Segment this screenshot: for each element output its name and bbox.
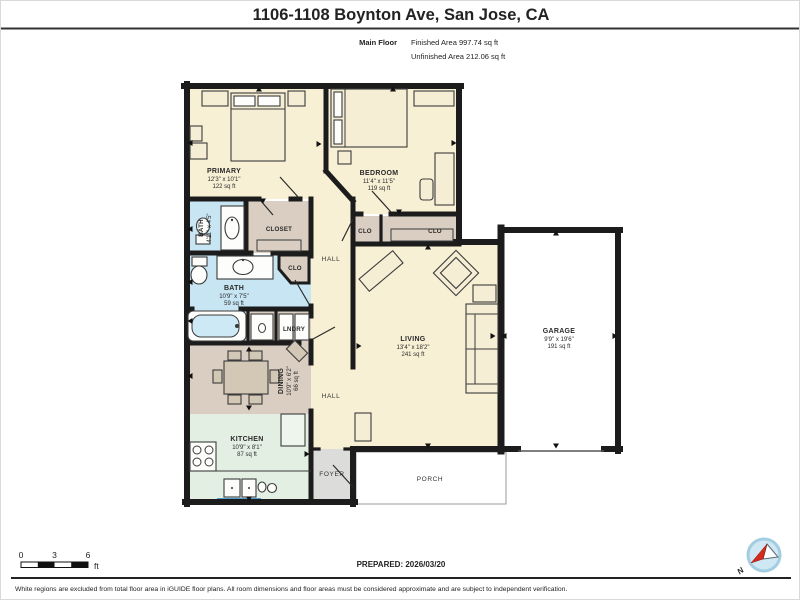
label-garage: GARAGE bbox=[543, 328, 576, 335]
area-kitchen: 87 sq ft bbox=[237, 452, 257, 458]
area-dining: 66 sq ft bbox=[294, 371, 300, 391]
compass-north-label: N bbox=[735, 566, 745, 577]
header: 1106-1108 Boynton Ave, San Jose, CA Main… bbox=[1, 6, 800, 61]
label-clo-hall: CLO bbox=[288, 265, 302, 272]
footer: PREPARED: 2026/03/20 N White regions are… bbox=[11, 539, 791, 593]
living-side-table-icon bbox=[473, 285, 496, 302]
floor-plan-canvas: 1106-1108 Boynton Ave, San Jose, CA Main… bbox=[1, 1, 800, 600]
page-title: 1106-1108 Boynton Ave, San Jose, CA bbox=[253, 6, 550, 24]
bathtub-icon bbox=[188, 311, 246, 341]
dims-dining: 10'9" x 6'2" bbox=[287, 366, 293, 396]
dims-bedroom: 11'4" x 11'5" bbox=[363, 179, 395, 185]
area-living: 241 sq ft bbox=[401, 352, 424, 358]
area-garage: 191 sq ft bbox=[547, 344, 570, 350]
floor-label: Main Floor bbox=[359, 38, 397, 47]
dims-kitchen: 10'9" x 8'1" bbox=[232, 445, 262, 451]
label-foyer: FOYER bbox=[319, 471, 344, 478]
dims-bath-main: 10'9" x 7'5" bbox=[219, 294, 249, 300]
scale-unit: ft bbox=[94, 561, 99, 571]
label-hall-lower: HALL bbox=[322, 393, 341, 400]
label-closet: CLOSET bbox=[266, 226, 292, 233]
floor-plan-page: 1106-1108 Boynton Ave, San Jose, CA Main… bbox=[0, 0, 800, 600]
label-hall-upper: HALL bbox=[322, 256, 341, 263]
prepared-date: PREPARED: 2026/03/20 bbox=[357, 560, 446, 569]
label-dining: DINING bbox=[278, 368, 285, 395]
label-kitchen: KITCHEN bbox=[230, 436, 263, 443]
kitchen-fridge-icon bbox=[281, 414, 305, 446]
unfinished-area: Unfinished Area 212.06 sq ft bbox=[411, 52, 506, 61]
compass-icon: N bbox=[735, 539, 780, 576]
label-living: LIVING bbox=[400, 336, 425, 343]
dims-garage: 9'9" x 19'6" bbox=[544, 337, 574, 343]
label-lndry: LNDRY bbox=[283, 326, 306, 333]
label-bath-main: BATH bbox=[224, 285, 244, 292]
label-primary: PRIMARY bbox=[207, 168, 241, 175]
bedroom-dresser-icon bbox=[414, 91, 454, 106]
living-cabinet-icon bbox=[355, 413, 371, 441]
bath-small-vanity-icon bbox=[221, 206, 244, 250]
bath-main-vanity-icon bbox=[217, 256, 273, 279]
living-sofa-icon bbox=[466, 304, 498, 393]
bedroom-nightstand-icon bbox=[338, 151, 351, 164]
dims-living: 13'4" x 18'2" bbox=[397, 345, 430, 351]
label-clo-bed-right: CLO bbox=[428, 228, 442, 235]
area-primary: 122 sq ft bbox=[212, 184, 235, 190]
disclaimer-text: White regions are excluded from total fl… bbox=[15, 586, 567, 593]
label-clo-bed-left: CLO bbox=[358, 228, 372, 235]
label-bath-small: BATH bbox=[198, 219, 205, 237]
label-bedroom: BEDROOM bbox=[360, 170, 399, 177]
scale-tick-6: 6 bbox=[86, 550, 91, 560]
bath-cabinet-icon bbox=[251, 314, 273, 340]
label-porch: PORCH bbox=[417, 476, 443, 483]
primary-bed-icon bbox=[231, 93, 285, 161]
kitchen-stove-icon bbox=[190, 442, 216, 471]
dims-primary: 12'3" x 10'1" bbox=[208, 177, 241, 183]
area-bath-main: 59 sq ft bbox=[224, 301, 244, 307]
finished-area: Finished Area 997.74 sq ft bbox=[411, 38, 499, 47]
area-bedroom: 119 sq ft bbox=[368, 186, 391, 192]
dims-bath-small: 4'11" x 4'5" bbox=[207, 213, 213, 242]
scale-bar: 0 3 6 ft bbox=[19, 550, 100, 571]
scale-tick-0: 0 bbox=[19, 550, 24, 560]
bedroom-bed-icon bbox=[331, 89, 407, 147]
scale-tick-3: 3 bbox=[52, 550, 57, 560]
bath-main-toilet-icon bbox=[191, 257, 207, 284]
